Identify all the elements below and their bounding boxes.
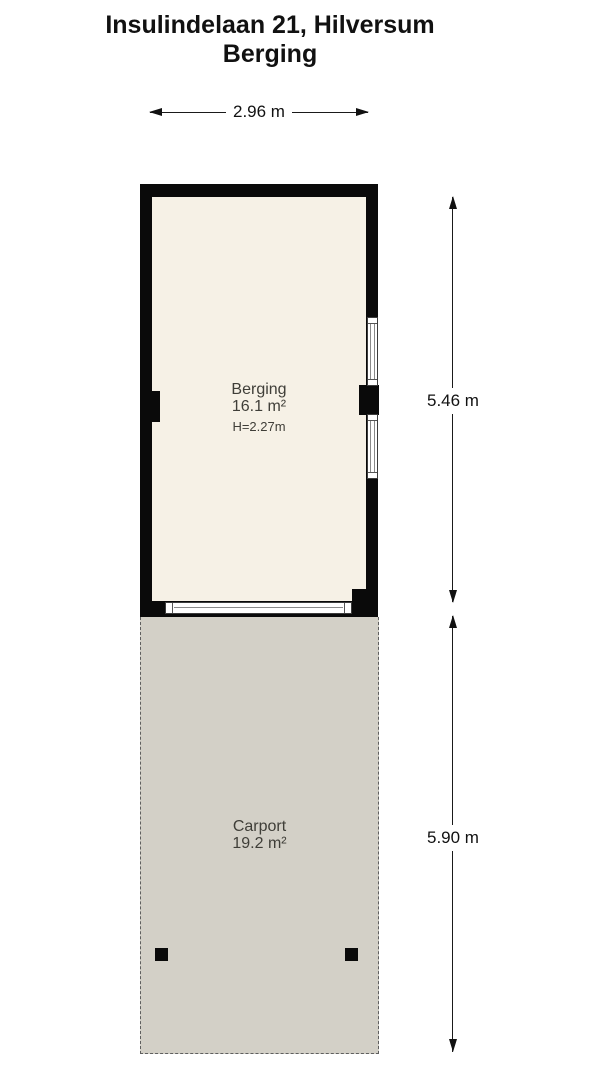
berging-ceiling-height: H=2.27m bbox=[152, 419, 366, 434]
carport-room-label: Carport 19.2 m² bbox=[140, 818, 379, 852]
title-plan-name: Berging bbox=[70, 40, 470, 69]
bottom-sliding-window bbox=[165, 602, 352, 614]
title-address: Insulindelaan 21, Hilversum bbox=[70, 11, 470, 40]
arrowhead-up-icon bbox=[449, 196, 457, 209]
right-window-bottom bbox=[367, 414, 378, 479]
carport-height-label: 5.90 m bbox=[425, 825, 481, 851]
arrowhead-down-icon bbox=[449, 1039, 457, 1052]
window-frame-cap bbox=[368, 472, 377, 473]
window-frame-cap bbox=[368, 420, 377, 421]
window-frame-cap bbox=[344, 603, 345, 613]
berging-height-label: 5.46 m bbox=[425, 388, 481, 414]
carport-height-dimension: 5.90 m bbox=[416, 825, 490, 851]
width-dimension-label: 2.96 m bbox=[226, 102, 292, 121]
carport-name: Carport bbox=[140, 818, 379, 835]
width-dimension: 2.96 m bbox=[150, 102, 368, 122]
arrowhead-up-icon bbox=[449, 615, 457, 628]
berging-height-dimension: 5.46 m bbox=[416, 388, 490, 414]
plan-title: Insulindelaan 21, Hilversum Berging bbox=[70, 11, 470, 69]
bottom-right-door-jamb bbox=[352, 589, 378, 617]
arrowhead-down-icon bbox=[449, 590, 457, 603]
carport-post-left bbox=[155, 948, 168, 961]
carport-post-right bbox=[345, 948, 358, 961]
berging-name: Berging bbox=[152, 381, 366, 398]
floorplan-page: Insulindelaan 21, Hilversum Berging 2.96… bbox=[0, 0, 600, 1066]
window-frame-cap bbox=[172, 603, 173, 613]
carport-area-value: 19.2 m² bbox=[140, 835, 379, 852]
berging-room-label: Berging 16.1 m² H=2.27m bbox=[152, 381, 366, 434]
right-window-top bbox=[367, 317, 378, 386]
window-frame-cap bbox=[368, 379, 377, 380]
berging-area: 16.1 m² bbox=[152, 398, 366, 415]
window-frame-cap bbox=[368, 323, 377, 324]
